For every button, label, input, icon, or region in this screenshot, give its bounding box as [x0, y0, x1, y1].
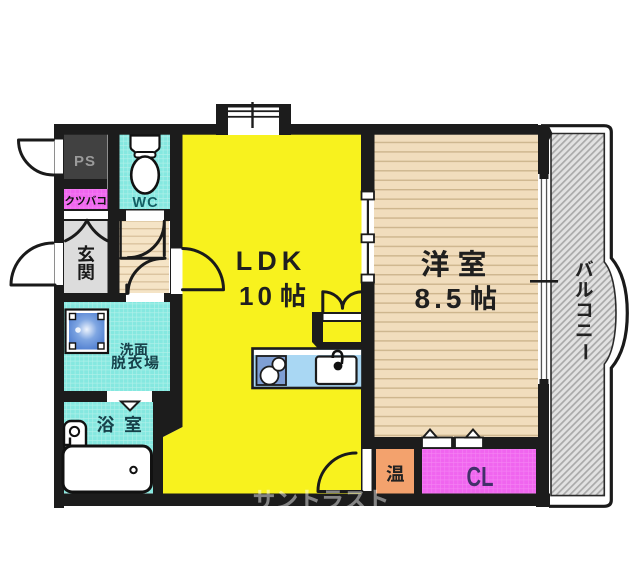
svg-text:WC: WC: [132, 195, 158, 211]
svg-text:PS: PS: [74, 153, 96, 170]
svg-text:8.5: 8.5: [415, 283, 466, 314]
svg-text:10: 10: [239, 281, 276, 311]
svg-text:LDK: LDK: [236, 246, 307, 276]
svg-text:CL: CL: [467, 461, 494, 492]
